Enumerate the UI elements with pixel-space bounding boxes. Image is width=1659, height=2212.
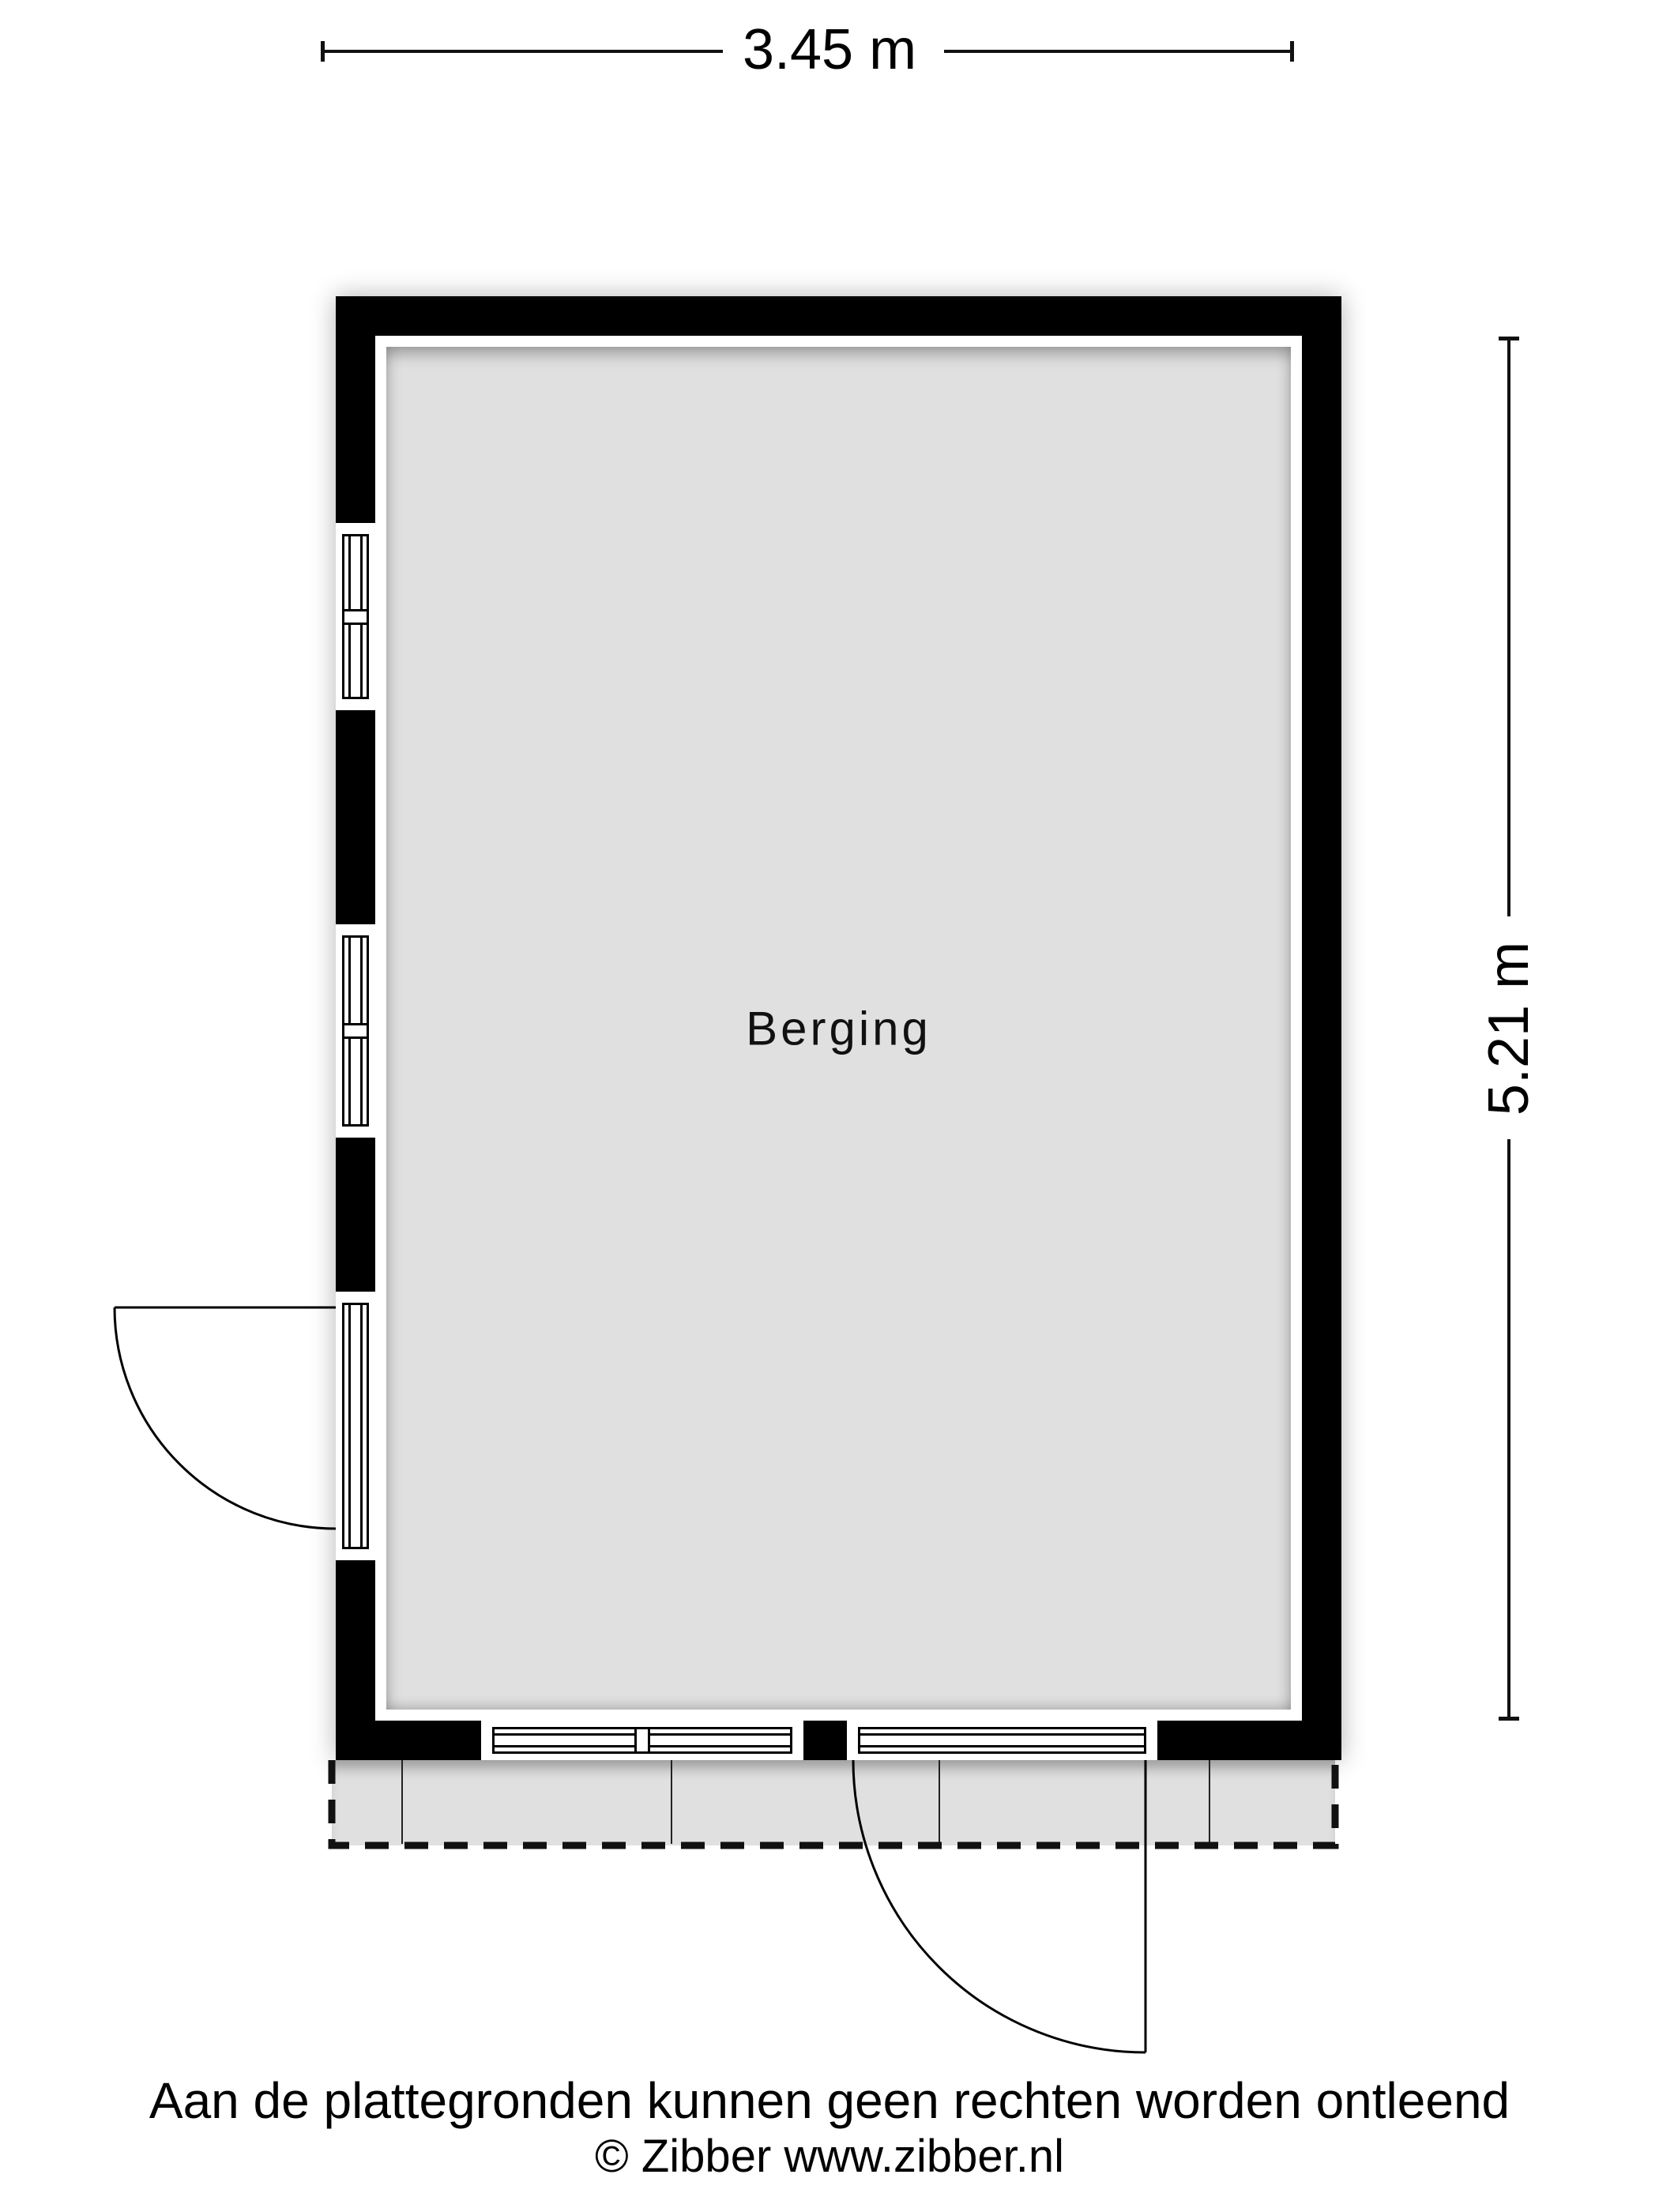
window-divider: [344, 1023, 367, 1039]
door-left: [336, 1292, 375, 1560]
window-bottom: [481, 1721, 803, 1760]
dimension-top-line-right: [944, 50, 1293, 53]
window-frame: [342, 534, 369, 699]
door-leaf-closed: [858, 1727, 1146, 1754]
door-bottom: [847, 1721, 1157, 1760]
dimension-top-tick-left: [321, 41, 325, 62]
dimension-top-label: 3.45 m: [671, 17, 987, 82]
floor-area: Berging: [386, 347, 1291, 1710]
dimension-top-tick-right: [1290, 41, 1294, 62]
door-glass: [348, 1305, 363, 1547]
dimension-top-line-left: [322, 50, 723, 53]
dimension-right-label: 5.21 m: [1477, 942, 1541, 1115]
door-leaf-closed: [342, 1303, 369, 1549]
window-left-lower: [336, 924, 375, 1138]
window-divider: [344, 609, 367, 625]
apron-joint-line: [401, 1760, 403, 1844]
window-divider: [634, 1729, 650, 1751]
window-frame: [342, 935, 369, 1127]
apron-joint-line: [939, 1760, 940, 1844]
door-left-swing-arc: [115, 1307, 336, 1529]
window-left-upper: [336, 523, 375, 710]
building-outline: Berging: [336, 296, 1341, 1760]
apron-joint-line: [671, 1760, 672, 1844]
footer-disclaimer: Aan de plattegronden kunnen geen rechten…: [0, 2071, 1659, 2130]
dimension-right-line-bottom: [1507, 1139, 1510, 1720]
apron-joint-line: [1209, 1760, 1210, 1844]
paved-apron: [332, 1760, 1335, 1845]
door-glass: [860, 1733, 1144, 1747]
dimension-right-line-top: [1507, 338, 1510, 916]
dimension-right-tick-top: [1499, 337, 1519, 340]
room-label: Berging: [746, 1001, 931, 1055]
footer-credit: © Zibber www.zibber.nl: [0, 2130, 1659, 2183]
floorplan-page: 3.45 m 5.21 m Berging: [0, 0, 1659, 2212]
window-frame: [492, 1727, 792, 1754]
dimension-right-tick-bottom: [1499, 1717, 1519, 1721]
